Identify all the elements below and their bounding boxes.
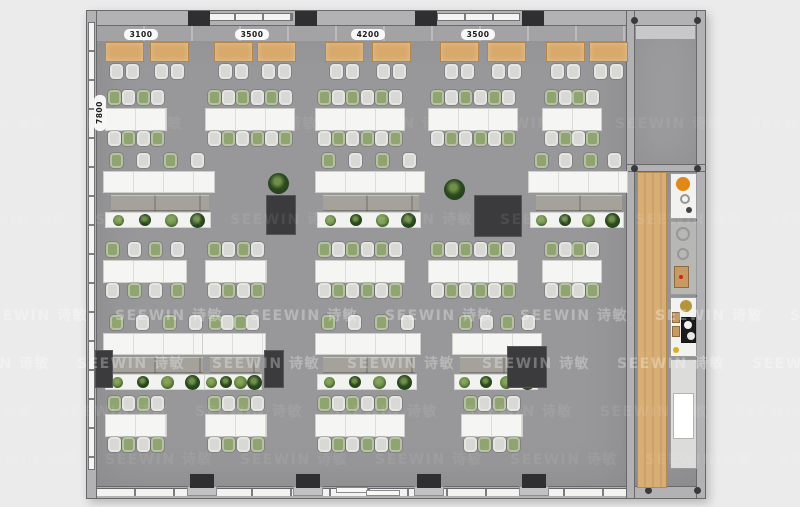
chair-gray xyxy=(375,437,388,452)
chair-green xyxy=(106,242,119,257)
chair-gray xyxy=(401,315,414,330)
chair-green xyxy=(431,90,444,105)
chair-gray xyxy=(108,437,121,452)
desk-cluster xyxy=(428,108,518,131)
chair-green xyxy=(128,283,141,298)
desk-cluster xyxy=(105,108,167,131)
desk-cluster xyxy=(205,108,295,131)
chair-gray xyxy=(349,153,362,168)
chair-gray xyxy=(237,437,250,452)
chair-gray xyxy=(492,64,505,79)
chair-gray xyxy=(236,131,249,146)
floor-plan-canvas: 31003500420035007800 SEEWIN 诗敏SEEWIN 诗敏S… xyxy=(0,0,800,507)
chair-gray xyxy=(122,90,135,105)
chair-gray xyxy=(559,90,572,105)
wood-table xyxy=(257,42,296,62)
chair-gray xyxy=(567,64,580,79)
plant xyxy=(349,376,361,388)
chair-green xyxy=(545,242,558,257)
chair-gray xyxy=(361,242,374,257)
chair-gray xyxy=(522,315,535,330)
appliance-circle-icon xyxy=(684,321,692,329)
chair-gray xyxy=(431,131,444,146)
locker-unit xyxy=(323,195,419,211)
chair-green xyxy=(222,437,235,452)
column xyxy=(522,474,546,488)
chair-gray xyxy=(594,64,607,79)
wood-table xyxy=(105,42,144,62)
appliance-circle-icon xyxy=(686,207,692,213)
chair-green xyxy=(164,153,177,168)
chair-green xyxy=(122,437,135,452)
chair-gray xyxy=(559,153,572,168)
chair-gray xyxy=(106,283,119,298)
chair-green xyxy=(478,437,491,452)
dimension-label: 3500 xyxy=(461,29,495,40)
chair-gray xyxy=(221,315,234,330)
chair-green xyxy=(572,242,585,257)
chair-green xyxy=(474,283,487,298)
chair-green xyxy=(171,283,184,298)
wood-table xyxy=(589,42,628,62)
chair-green xyxy=(361,131,374,146)
chair-gray xyxy=(431,283,444,298)
chair-gray xyxy=(389,90,402,105)
chair-gray xyxy=(459,283,472,298)
plant xyxy=(113,215,124,226)
chair-green xyxy=(361,283,374,298)
bench-desk xyxy=(103,171,215,193)
plant xyxy=(112,377,123,388)
dimension-label: 3500 xyxy=(235,29,269,40)
chair-green xyxy=(346,396,359,411)
chair-gray xyxy=(445,64,458,79)
chair-green xyxy=(208,396,221,411)
chair-green xyxy=(502,283,515,298)
chair-gray xyxy=(208,131,221,146)
chair-green xyxy=(234,315,247,330)
chair-green xyxy=(501,315,514,330)
plant xyxy=(185,375,200,390)
appliance-ring-icon xyxy=(680,194,690,204)
chair-gray xyxy=(149,283,162,298)
desk-cluster xyxy=(205,414,267,437)
chair-gray xyxy=(171,242,184,257)
chair-green xyxy=(137,396,150,411)
chair-green xyxy=(389,437,402,452)
storage-cabinet xyxy=(507,346,547,388)
chair-gray xyxy=(318,283,331,298)
chair-green xyxy=(236,90,249,105)
chair-gray xyxy=(108,131,121,146)
chair-gray xyxy=(155,64,168,79)
dimension-label-vertical: 7800 xyxy=(94,95,106,131)
chair-green xyxy=(318,242,331,257)
chair-gray xyxy=(464,437,477,452)
chair-gray xyxy=(330,64,343,79)
chair-green xyxy=(151,131,164,146)
chair-gray xyxy=(346,437,359,452)
chair-green xyxy=(209,315,222,330)
chair-gray xyxy=(459,131,472,146)
chair-gray xyxy=(265,131,278,146)
chair-green xyxy=(346,242,359,257)
chair-gray xyxy=(346,131,359,146)
chair-green xyxy=(237,242,250,257)
chair-gray xyxy=(393,64,406,79)
chair-gray xyxy=(348,315,361,330)
chair-gray xyxy=(246,315,259,330)
chair-green xyxy=(251,437,264,452)
appliance-ring-icon xyxy=(676,227,690,241)
column xyxy=(188,11,210,26)
chair-green xyxy=(122,131,135,146)
chair-gray xyxy=(389,396,402,411)
furniture-layer: 31003500420035007800 xyxy=(0,0,800,507)
plant xyxy=(325,215,336,226)
chair-green xyxy=(445,131,458,146)
chair-gray xyxy=(128,242,141,257)
chair-green xyxy=(332,437,345,452)
chair-green xyxy=(559,131,572,146)
desk-cluster xyxy=(205,260,267,283)
chair-gray xyxy=(237,283,250,298)
chair-gray xyxy=(389,242,402,257)
chair-gray xyxy=(222,396,235,411)
plant xyxy=(190,213,205,228)
wood-bar-counter xyxy=(637,172,667,488)
chair-green xyxy=(375,90,388,105)
chair-green xyxy=(149,242,162,257)
bench-desk xyxy=(202,333,266,355)
desk-cluster xyxy=(103,260,187,283)
chair-gray xyxy=(346,64,359,79)
chair-gray xyxy=(222,90,235,105)
chair-gray xyxy=(208,283,221,298)
plant xyxy=(137,376,149,388)
plant xyxy=(220,376,232,388)
chair-green xyxy=(535,153,548,168)
chair-green xyxy=(318,396,331,411)
chair-green xyxy=(265,90,278,105)
chair-gray xyxy=(474,90,487,105)
chair-gray xyxy=(318,437,331,452)
chair-green xyxy=(507,437,520,452)
appliance-circle-icon xyxy=(673,347,679,353)
chair-gray xyxy=(137,131,150,146)
chair-gray xyxy=(189,315,202,330)
chair-gray xyxy=(346,283,359,298)
chair-gray xyxy=(488,283,501,298)
chair-gray xyxy=(262,64,275,79)
chair-gray xyxy=(474,242,487,257)
chair-green xyxy=(279,131,292,146)
chair-gray xyxy=(375,131,388,146)
chair-gray xyxy=(608,153,621,168)
column xyxy=(415,11,437,26)
wood-table xyxy=(325,42,364,62)
chair-gray xyxy=(151,396,164,411)
chair-green xyxy=(375,315,388,330)
chair-green xyxy=(474,131,487,146)
chair-green xyxy=(110,315,123,330)
chair-gray xyxy=(403,153,416,168)
desk-cluster xyxy=(542,108,602,131)
chair-gray xyxy=(137,153,150,168)
desk-cluster xyxy=(315,414,405,437)
desk-cluster xyxy=(428,260,518,283)
appliance-circle-icon xyxy=(680,300,692,312)
chair-gray xyxy=(545,283,558,298)
plant xyxy=(324,377,335,388)
plant xyxy=(459,377,470,388)
bench-desk xyxy=(315,333,421,355)
column xyxy=(417,474,441,488)
storage-cabinet xyxy=(474,195,522,237)
chair-green xyxy=(251,131,264,146)
dimension-label: 3100 xyxy=(124,29,158,40)
chair-gray xyxy=(545,131,558,146)
chair-green xyxy=(322,153,335,168)
chair-green xyxy=(222,283,235,298)
chair-gray xyxy=(445,90,458,105)
plant xyxy=(161,376,174,389)
chair-gray xyxy=(480,315,493,330)
appliance-box-icon xyxy=(672,312,680,323)
plant xyxy=(397,375,412,390)
plant xyxy=(268,173,289,194)
plant xyxy=(536,215,547,226)
chair-green xyxy=(375,396,388,411)
chair-green xyxy=(376,153,389,168)
chair-gray xyxy=(586,242,599,257)
chair-green xyxy=(464,396,477,411)
appliance-circle-icon xyxy=(679,275,683,279)
desk-cluster xyxy=(461,414,523,437)
desk-cluster xyxy=(105,414,167,437)
bench-desk xyxy=(315,171,425,193)
chair-gray xyxy=(586,90,599,105)
chair-green xyxy=(586,283,599,298)
chair-green xyxy=(163,315,176,330)
chair-gray xyxy=(461,64,474,79)
plant xyxy=(206,377,217,388)
chair-gray xyxy=(361,90,374,105)
locker-unit xyxy=(210,357,260,373)
storage-cabinet xyxy=(264,350,284,388)
chair-green xyxy=(208,242,221,257)
plant xyxy=(376,214,389,227)
chair-green xyxy=(151,437,164,452)
chair-gray xyxy=(122,396,135,411)
appliance-box-icon xyxy=(672,326,680,337)
chair-green xyxy=(332,283,345,298)
plant xyxy=(234,376,247,389)
wood-table xyxy=(372,42,411,62)
chair-green xyxy=(586,131,599,146)
plant xyxy=(605,213,620,228)
chair-gray xyxy=(137,437,150,452)
chair-green xyxy=(584,153,597,168)
plant xyxy=(401,213,416,228)
chair-gray xyxy=(278,64,291,79)
chair-gray xyxy=(478,396,491,411)
bench-desk xyxy=(103,333,209,355)
locker-unit xyxy=(111,195,209,211)
chair-green xyxy=(545,90,558,105)
chair-gray xyxy=(551,64,564,79)
chair-green xyxy=(488,90,501,105)
chair-green xyxy=(389,131,402,146)
chair-green xyxy=(208,90,221,105)
chair-gray xyxy=(502,242,515,257)
desk-cluster xyxy=(542,260,602,283)
chair-gray xyxy=(375,283,388,298)
chair-green xyxy=(332,131,345,146)
appliance-circle-icon xyxy=(676,177,690,191)
dimension-label: 4200 xyxy=(351,29,385,40)
plant xyxy=(139,214,151,226)
chair-green xyxy=(110,153,123,168)
chair-gray xyxy=(235,64,248,79)
chair-green xyxy=(431,242,444,257)
chair-gray xyxy=(251,242,264,257)
chair-green xyxy=(322,315,335,330)
chair-green xyxy=(137,90,150,105)
chair-green xyxy=(251,283,264,298)
chair-gray xyxy=(318,131,331,146)
wood-table xyxy=(214,42,253,62)
plant xyxy=(373,376,386,389)
wood-table xyxy=(150,42,189,62)
chair-gray xyxy=(191,153,204,168)
locker-unit xyxy=(323,357,415,373)
chair-green xyxy=(108,90,121,105)
plant xyxy=(480,376,492,388)
chair-green xyxy=(572,90,585,105)
chair-gray xyxy=(332,90,345,105)
chair-gray xyxy=(572,283,585,298)
chair-gray xyxy=(361,396,374,411)
wood-table xyxy=(440,42,479,62)
plant xyxy=(165,214,178,227)
chair-green xyxy=(488,242,501,257)
chair-green xyxy=(318,90,331,105)
chair-green xyxy=(222,131,235,146)
chair-green xyxy=(502,131,515,146)
chair-gray xyxy=(559,242,572,257)
chair-green xyxy=(375,242,388,257)
chair-green xyxy=(389,283,402,298)
column xyxy=(190,474,214,488)
column xyxy=(522,11,544,26)
chair-gray xyxy=(493,437,506,452)
chair-gray xyxy=(251,90,264,105)
storage-cabinet xyxy=(95,350,113,388)
chair-gray xyxy=(110,64,123,79)
bench-desk xyxy=(528,171,628,193)
chair-gray xyxy=(572,131,585,146)
column xyxy=(295,11,317,26)
chair-gray xyxy=(126,64,139,79)
appliance-ring-icon xyxy=(677,248,689,260)
chair-gray xyxy=(332,396,345,411)
locker-unit xyxy=(536,195,622,211)
chair-gray xyxy=(502,90,515,105)
chair-green xyxy=(237,396,250,411)
appliance-box-icon xyxy=(673,393,694,439)
plant xyxy=(582,214,595,227)
chair-gray xyxy=(222,242,235,257)
appliance-circle-icon xyxy=(687,332,695,340)
desk-cluster xyxy=(315,108,405,131)
plant xyxy=(350,214,362,226)
column xyxy=(296,474,320,488)
chair-green xyxy=(559,283,572,298)
chair-green xyxy=(493,396,506,411)
plant xyxy=(247,375,262,390)
wood-table xyxy=(546,42,585,62)
wood-table xyxy=(487,42,526,62)
chair-gray xyxy=(251,396,264,411)
chair-gray xyxy=(508,64,521,79)
storage-cabinet xyxy=(266,195,296,235)
chair-gray xyxy=(488,131,501,146)
chair-gray xyxy=(332,242,345,257)
chair-gray xyxy=(507,396,520,411)
chair-gray xyxy=(208,437,221,452)
chair-green xyxy=(459,242,472,257)
chair-gray xyxy=(445,242,458,257)
chair-gray xyxy=(610,64,623,79)
chair-gray xyxy=(151,90,164,105)
chair-gray xyxy=(377,64,390,79)
desk-cluster xyxy=(315,260,405,283)
chair-green xyxy=(459,315,472,330)
chair-green xyxy=(108,396,121,411)
chair-gray xyxy=(171,64,184,79)
plant xyxy=(444,179,465,200)
chair-green xyxy=(459,90,472,105)
chair-gray xyxy=(136,315,149,330)
chair-green xyxy=(361,437,374,452)
chair-gray xyxy=(219,64,232,79)
chair-gray xyxy=(279,90,292,105)
chair-green xyxy=(445,283,458,298)
locker-unit xyxy=(111,357,203,373)
chair-green xyxy=(346,90,359,105)
